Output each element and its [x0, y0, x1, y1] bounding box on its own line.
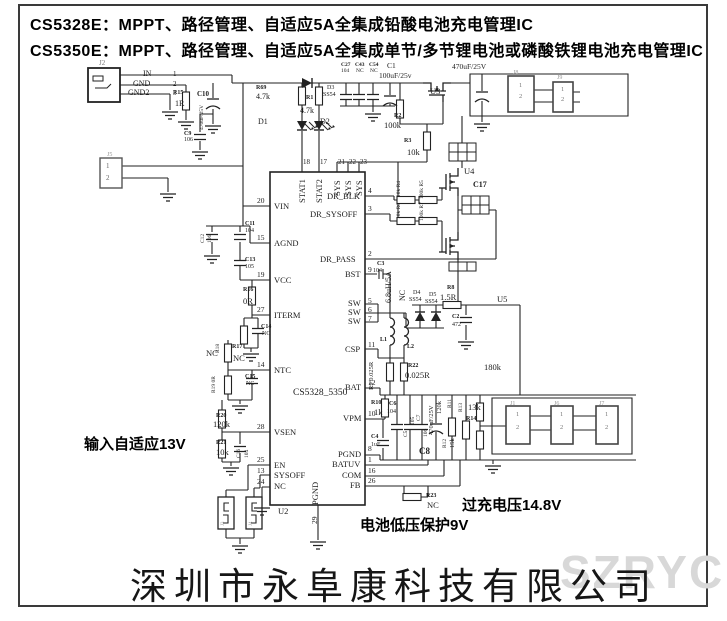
capacitor-c2	[460, 318, 472, 323]
dc-jack-j2	[88, 68, 120, 102]
resistor-r3	[424, 132, 431, 150]
diode-d4	[415, 312, 425, 321]
capacitor-c13	[234, 261, 246, 266]
resistor-r9	[387, 363, 394, 381]
capacitor-c43	[353, 95, 365, 100]
resistor-r6	[397, 218, 415, 225]
capacitor-c54	[367, 95, 379, 100]
resistor-r14	[477, 431, 484, 449]
capacitor-c16	[234, 447, 246, 452]
wires	[120, 74, 636, 544]
resistor-r10	[382, 399, 389, 417]
ground-icon	[243, 354, 259, 361]
resistor-r19	[225, 376, 232, 394]
ground-icon	[458, 342, 474, 349]
resistor-r2	[397, 100, 404, 118]
connector-j6	[551, 406, 573, 444]
schematic-page: CS5328E：MPPT、路径管理、自适应5A全集成铅酸电池充电管理IC CS5…	[0, 0, 727, 621]
pad-grid-mid	[449, 262, 476, 271]
ground-icon	[232, 406, 248, 413]
resistor-r12	[463, 421, 470, 439]
ground-icon	[232, 546, 248, 553]
resistor-r5	[419, 197, 437, 204]
resistor-r18	[225, 344, 232, 362]
ground-icon	[204, 256, 220, 263]
led-d2	[314, 121, 335, 130]
resistor-r1	[316, 87, 323, 105]
pad-grid-c17	[462, 196, 489, 214]
mosfet-u3	[423, 83, 451, 102]
capacitor-c10	[206, 99, 220, 109]
ground-icon	[485, 466, 501, 473]
resistor-r69	[299, 87, 306, 105]
ic-cs5328-body	[270, 172, 365, 505]
capacitor-c4	[377, 441, 389, 446]
resistor-r22	[401, 363, 408, 381]
resistor-r7	[419, 218, 437, 225]
capacitor-470uf	[475, 92, 489, 102]
annotation-input-adaptive: 输入自适应13V	[84, 433, 186, 454]
capacitor-c5	[404, 425, 416, 430]
ground-icon	[178, 122, 194, 129]
connector-j1	[506, 406, 530, 444]
resistor-r23	[403, 494, 421, 501]
resistor-r20	[219, 410, 226, 428]
inductor-l1	[390, 318, 395, 345]
ground-icon	[223, 468, 239, 475]
resistor-r13	[477, 403, 484, 421]
resistor-r11	[449, 418, 456, 436]
resistor-r4	[397, 197, 415, 204]
annotation-overcharge-voltage: 过充电压14.8V	[462, 494, 561, 515]
capacitor-c15	[246, 379, 258, 384]
jumper-j3	[218, 497, 234, 529]
pad-grid-top	[449, 143, 476, 161]
ground-icon	[310, 542, 326, 549]
connector-j8	[508, 76, 534, 112]
ground-icon	[160, 194, 176, 201]
diode-d5	[431, 312, 441, 321]
resistor-r15	[183, 92, 190, 110]
ground-icon	[205, 126, 221, 133]
capacitor-c12	[206, 235, 218, 240]
connector-j7	[596, 406, 618, 444]
diode-d3	[302, 78, 312, 88]
capacitor-c7	[416, 425, 428, 430]
resistor-r16	[249, 287, 256, 305]
ground-icon	[474, 124, 490, 131]
resistor-r21	[219, 440, 226, 458]
connector-j5	[100, 158, 122, 188]
resistor-r8	[443, 302, 461, 309]
capacitor-c9	[194, 135, 206, 140]
ground-icon	[365, 114, 381, 121]
capacitor-c14	[252, 329, 264, 334]
ground-icon	[162, 112, 178, 119]
annotation-battery-undervoltage: 电池低压保护9V	[360, 514, 468, 535]
capacitor-c27	[340, 95, 352, 100]
ground-icon	[192, 152, 208, 159]
capacitor-c6	[391, 425, 403, 430]
connector-j9	[553, 82, 573, 112]
components	[88, 68, 618, 553]
company-name: 深圳市永阜康科技有限公司	[130, 556, 658, 610]
jumper-j4	[246, 497, 262, 529]
capacitor-c11	[234, 235, 246, 240]
resistor-r17	[241, 326, 248, 344]
